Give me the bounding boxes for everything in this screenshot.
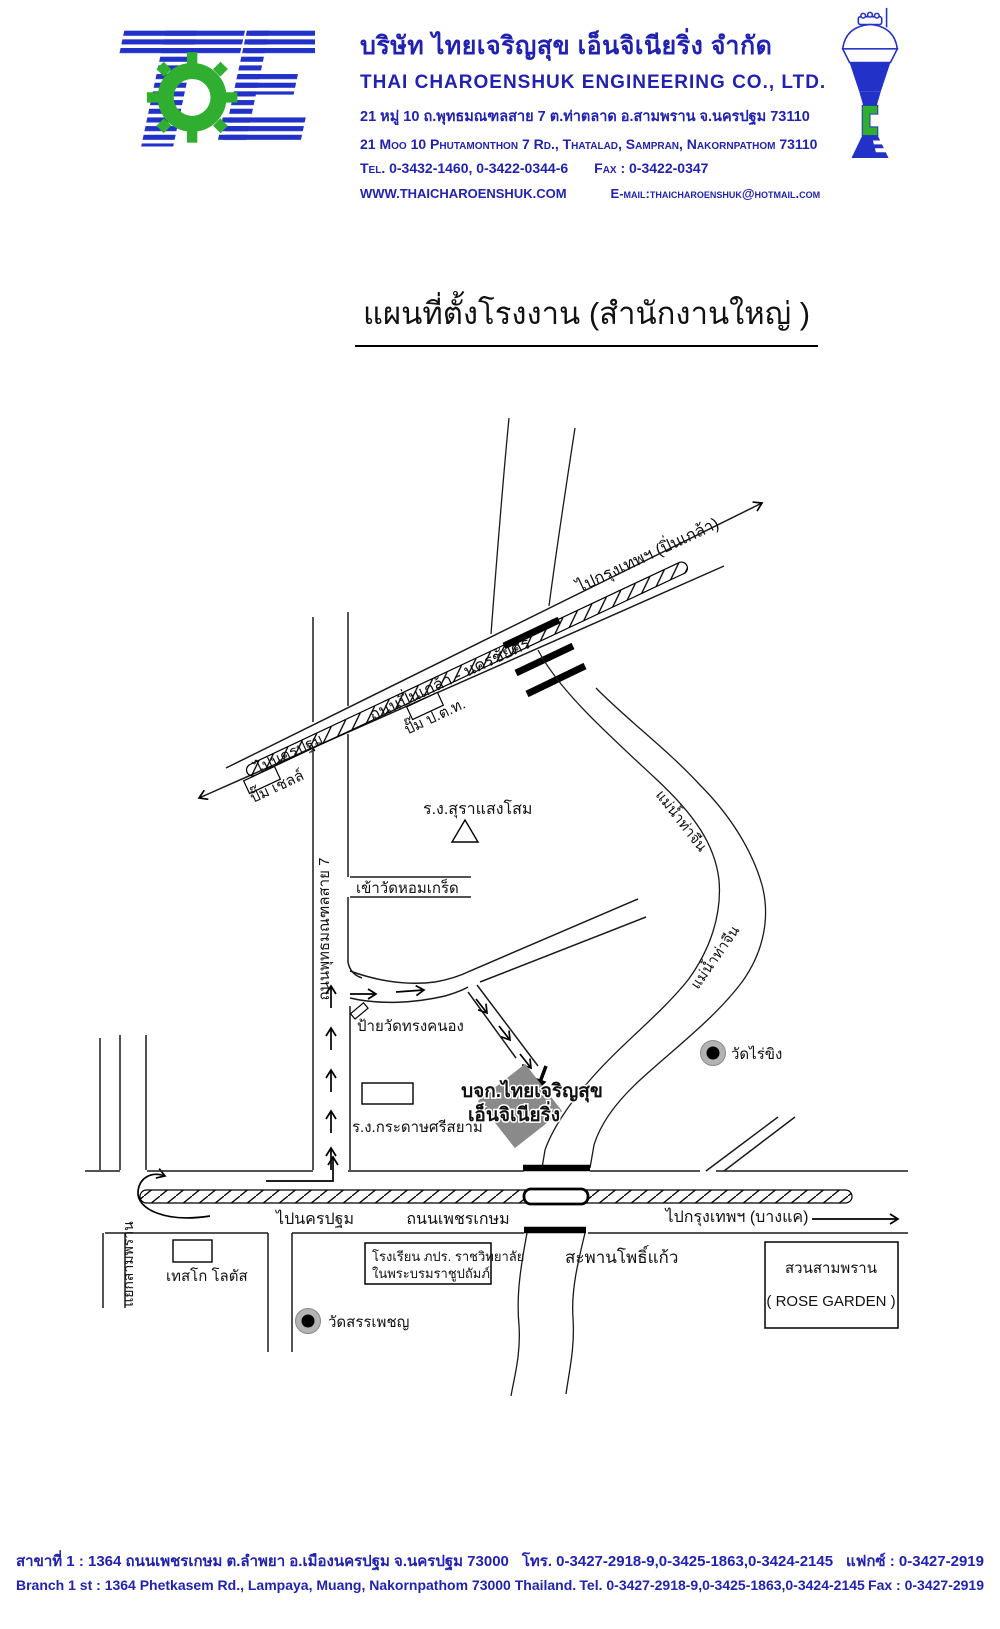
branch-tel-th: โทร. 0-3427-2918-9,0-3425-1863,0-3424-21… [522, 1549, 833, 1573]
label-wat-sanphet: วัดสรรเพชญ [328, 1314, 409, 1331]
tesco-building [173, 1240, 212, 1262]
label-school-line2: ในพระบรมราชูปถัมภ์ [372, 1266, 490, 1282]
footer-branch-th: สาขาที่ 1 : 1364 ถนนเพชรเกษม ต.ลำพยา อ.เ… [16, 1549, 984, 1573]
branch-tel-en: Tel. 0-3427-2918-9,0-3425-1863,0-3424-21… [579, 1577, 864, 1593]
label-sai7-road: ถนนพุทธมณฑลสาย 7 [316, 858, 334, 1001]
label-rose-garden-th: สวนสามพราน [785, 1260, 877, 1277]
letterhead-map-page: บริษัท ไทยเจริญสุข เอ็นจิเนียริ่ง จำกัด … [0, 0, 1000, 1629]
branch-address-th: สาขาที่ 1 : 1364 ถนนเพชรเกษม ต.ลำพยา อ.เ… [16, 1549, 509, 1573]
label-rose-garden-en: ( ROSE GARDEN ) [766, 1293, 895, 1310]
branch-fax-th: แฟกซ์ : 0-3427-2919 [846, 1549, 984, 1573]
wat-sanphet-marker [296, 1309, 321, 1334]
srisiam-building [362, 1083, 413, 1104]
footer-branch-en: Branch 1 st : 1364 Phetkasem Rd., Lampay… [16, 1577, 984, 1593]
sangsom-triangle [452, 820, 478, 842]
label-srisiam-factory: ร.ง.กระดาษศรีสยาม [352, 1119, 483, 1136]
songkhanong-sign-icon [351, 1003, 369, 1019]
label-to-bangkok-bangkae: ไปกรุงเทพฯ (บางแค) [664, 1207, 809, 1227]
branch-address-en: Branch 1 st : 1364 Phetkasem Rd., Lampay… [16, 1577, 576, 1593]
label-sangsom-factory: ร.ง.สุราแสงโสม [423, 799, 532, 819]
label-river-lower: แม่น้ำท่าจีน [685, 921, 743, 992]
label-wat-songkhanong-sign: ป้ายวัดทรงคนอง [357, 1018, 464, 1035]
label-company-line1: บจก.ไทยเจริญสุข [461, 1079, 603, 1103]
access-roads [350, 899, 646, 1066]
location-map: ไปกรุงเทพฯ (ปิ่นเกล้า) ถนนปิ่นเกล้า - นค… [0, 0, 1000, 1629]
branch-fax-en: Fax : 0-3427-2919 [868, 1577, 984, 1593]
rose-garden-box [765, 1242, 898, 1328]
wat-raikhing-marker [701, 1041, 726, 1066]
label-wat-raikhing: วัดไร่ขิง [731, 1045, 782, 1063]
label-tesco-lotus: เทสโก โลตัส [166, 1267, 248, 1285]
label-wat-homkret: เข้าวัดหอมเกร็ด [356, 878, 459, 897]
label-school-line1: โรงเรียน ภปร. ราชวิทยาลัย [372, 1249, 524, 1264]
label-to-nakhonpathom-lower: ไปนครปฐม [274, 1209, 354, 1228]
label-sampran-junction: แยกสามพราน [120, 1221, 136, 1307]
label-pho-kaeo-bridge: สะพานโพธิ์แก้ว [565, 1245, 678, 1267]
phetkasem-median [140, 1190, 852, 1203]
label-river-upper: แม่น้ำท่าจีน [652, 785, 713, 855]
phetkasem-bridge-median [524, 1189, 588, 1204]
label-phetkasem-road: ถนนเพชรเกษม [406, 1211, 509, 1228]
